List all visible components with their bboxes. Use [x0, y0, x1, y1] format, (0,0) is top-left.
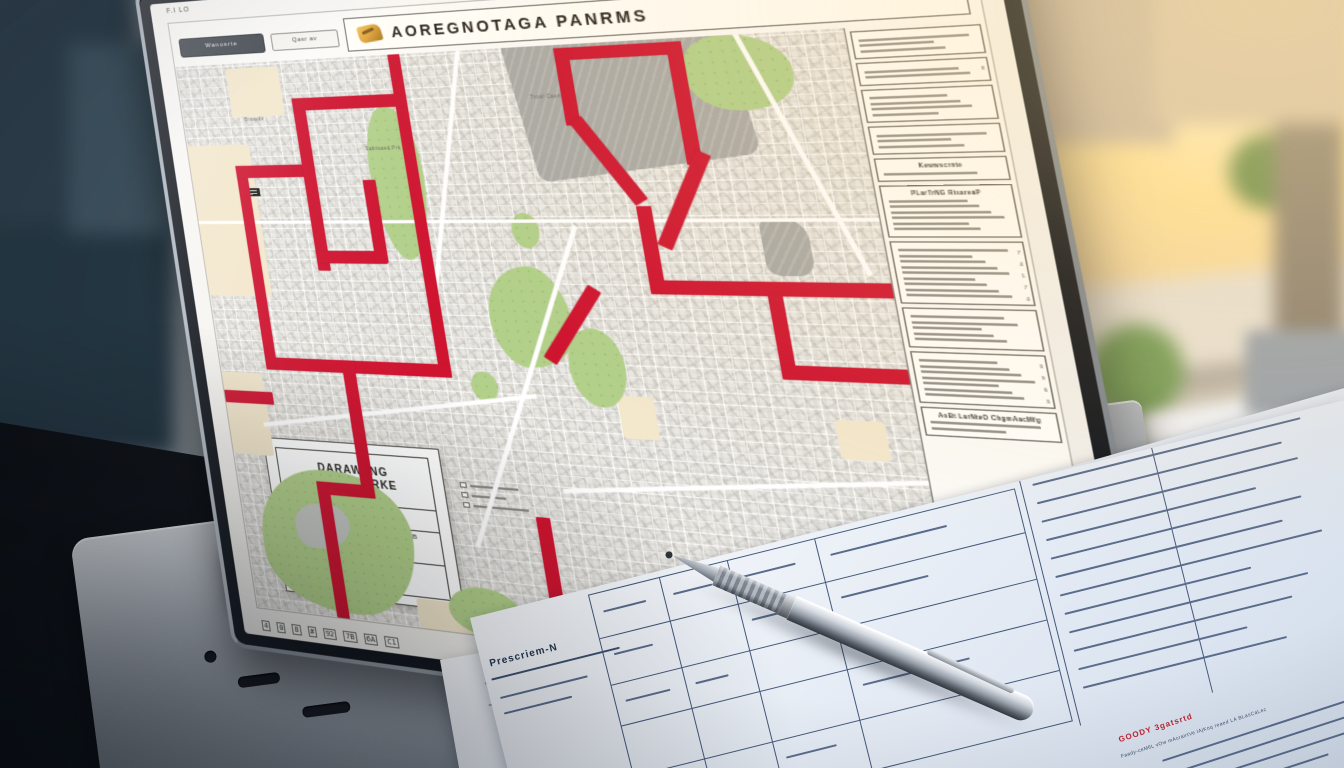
sidebar-section-title: PLarTrNG RisareaP — [885, 189, 1007, 197]
sidebar-text-line — [891, 210, 992, 213]
status-glyph: 6A — [363, 633, 378, 646]
sidebar-text-line — [923, 382, 999, 388]
map-place-label: Braasde — [244, 117, 264, 123]
paragraph-line — [1041, 457, 1298, 523]
route-segment — [264, 357, 452, 377]
sidebar-text-line — [906, 294, 1011, 298]
legend-symbol — [459, 482, 467, 488]
legend-line — [473, 505, 529, 512]
paragraph-line — [1083, 636, 1287, 689]
background-building — [1274, 124, 1344, 354]
status-glyph: C1 — [384, 636, 399, 649]
background-building — [0, 224, 174, 454]
map-road-line — [562, 481, 944, 494]
map-road-line — [263, 394, 537, 426]
pen-tip-ball — [665, 550, 674, 559]
map-beige-district — [616, 396, 660, 441]
sidebar-text-line — [872, 111, 938, 116]
sidebar-text-line — [889, 199, 968, 202]
sidebar-text-line — [884, 171, 978, 175]
map-beige-district — [834, 419, 891, 462]
sidebar-text-line — [910, 315, 1004, 320]
map-beige-district — [221, 371, 274, 456]
usb-port — [237, 672, 280, 688]
status-glyph: 0 — [276, 622, 286, 634]
sidebar-text-line — [920, 365, 1010, 371]
sidebar-number: 3 — [1046, 399, 1051, 404]
paragraph-line — [1064, 567, 1251, 615]
sidebar-text-line — [914, 332, 995, 337]
toolbar-dark-button[interactable]: Wanosrte — [178, 33, 266, 57]
sidebar-number: 6 — [1043, 387, 1048, 392]
sidebar-text-line — [904, 282, 987, 286]
route-segment — [780, 365, 910, 384]
map-beige-district — [226, 67, 285, 118]
legend-symbol — [463, 502, 471, 508]
sidebar-section: AoBt LarNteO ChgmAacMfg — [920, 406, 1062, 443]
sidebar-text-line — [871, 104, 972, 110]
status-glyph: 7B — [343, 631, 358, 643]
sidebar-text-line — [893, 222, 969, 225]
status-glyph: 4 — [261, 620, 271, 632]
hdmi-port — [302, 701, 351, 718]
background-building — [1154, 0, 1344, 124]
sidebar-section — [850, 24, 987, 59]
document-title: AOREGNOTAGA PANRMS — [390, 6, 651, 40]
sidebar-number: 4 — [1019, 261, 1023, 266]
bezel-corner-text: F.I LO — [166, 6, 190, 15]
sidebar-section — [868, 123, 1006, 155]
sidebar-section: 8 — [856, 57, 992, 86]
paragraph-line — [1060, 529, 1322, 596]
sidebar-text-line — [858, 33, 968, 41]
sidebar-text-line — [915, 338, 1007, 343]
map-road-line — [432, 28, 462, 310]
form-tail-lines — [1162, 680, 1344, 768]
sidebar-section: PLarTrNG RisareaP — [879, 184, 1023, 237]
sidebar-text-line — [877, 138, 951, 142]
sidebar-text-line — [931, 426, 1005, 432]
sidebar-text-line — [876, 131, 986, 137]
map-park-area — [562, 327, 633, 409]
bird-stamp-icon — [356, 23, 384, 44]
sidebar-section — [902, 307, 1045, 351]
sidebar-text-line — [865, 72, 971, 79]
route-segment — [292, 98, 331, 270]
sidebar-section — [861, 84, 1000, 123]
sidebar-number: 9 — [1041, 375, 1046, 380]
sidebar-text-line — [890, 205, 980, 208]
sidebar-text-line — [905, 288, 999, 292]
sidebar-text-line — [911, 321, 1017, 326]
toolbar-light-button[interactable]: Qasr av — [270, 29, 340, 51]
paragraph-line — [1171, 710, 1344, 768]
paragraph-line — [1078, 626, 1247, 670]
sidebar-text-line — [898, 249, 1008, 252]
sidebar-text-line — [900, 260, 985, 263]
sidebar-text-line — [901, 266, 997, 269]
sidebar-section-title: Kewwscrnte — [880, 161, 1002, 170]
sidebar-number: 7 — [1017, 250, 1021, 255]
sidebar-text-line — [902, 271, 1010, 275]
sidebar-text-line — [892, 216, 1004, 219]
sidebar-text-line — [878, 143, 963, 148]
sidebar-text-line — [860, 46, 946, 53]
sidebar-text-line — [919, 359, 998, 364]
sidebar-text-line — [894, 227, 981, 230]
sidebar-text-line — [899, 254, 973, 257]
audio-port — [204, 650, 217, 663]
sidebar-section: 3963 — [910, 350, 1056, 408]
map-water-industrial-area — [757, 218, 815, 276]
sidebar-text-line — [903, 277, 975, 280]
status-glyph: # — [307, 626, 317, 638]
sidebar-number: 7 — [1023, 285, 1028, 290]
map-place-label: Saknsaed Prk — [365, 145, 401, 151]
paragraph-line — [1051, 495, 1302, 559]
status-glyph: 8 — [292, 624, 302, 636]
sidebar-text-line — [913, 326, 983, 330]
sidebar-section: 74174 — [889, 241, 1036, 306]
sidebar-number: 4 — [1026, 296, 1031, 301]
map-park-area — [481, 266, 580, 370]
photo-scene: ····· F.I LO Wanosrte Qasr av AOREGNOTAG… — [0, 0, 1344, 768]
sidebar-text-line — [869, 94, 948, 99]
sidebar-number: 1 — [1021, 273, 1025, 278]
bezel-status-icons: 408#927B6AC1 — [261, 620, 399, 649]
legend-symbol — [461, 492, 469, 498]
sidebar-number: 8 — [981, 66, 985, 71]
sidebar-number: 3 — [1039, 364, 1044, 369]
sidebar-text-line — [870, 99, 960, 105]
sidebar-text-line — [925, 393, 1024, 400]
status-glyph: 92 — [323, 628, 338, 640]
sidebar-section: Kewwscrnte — [874, 156, 1012, 182]
